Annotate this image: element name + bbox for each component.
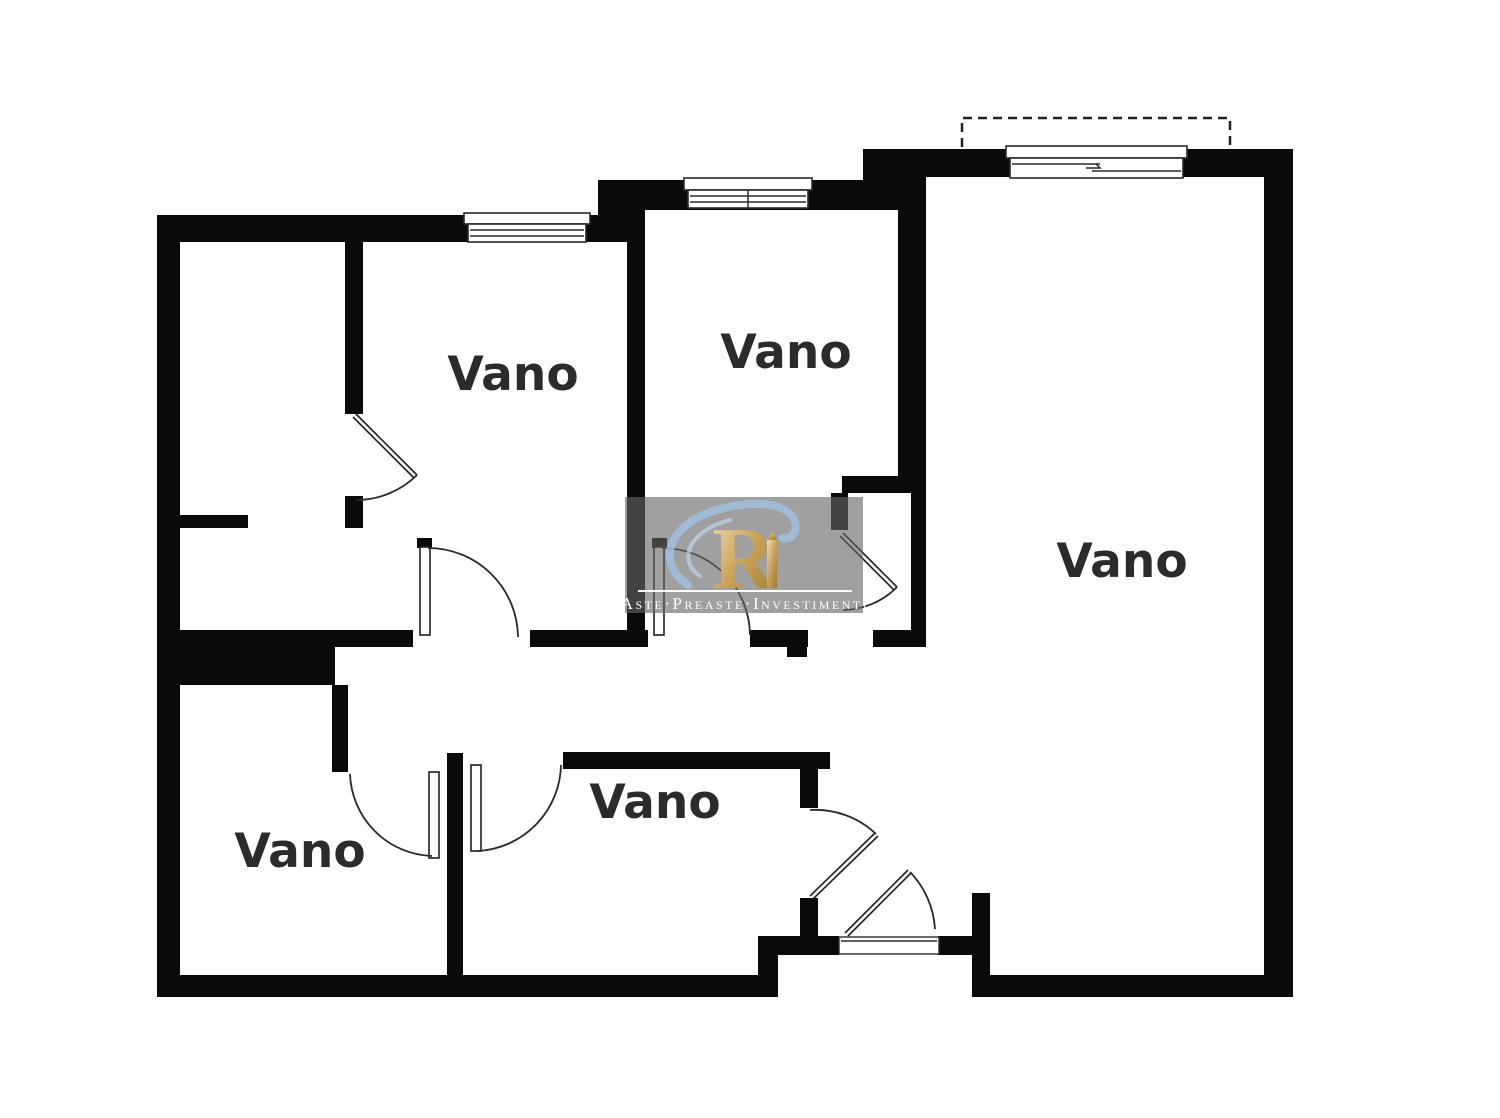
window-upper-right (1006, 146, 1187, 178)
wall-segment (157, 215, 180, 997)
wall-segment (800, 898, 818, 938)
window-upper-left (464, 213, 590, 242)
wall-segment (842, 476, 926, 493)
room-label-vano-5: Vano (589, 775, 720, 830)
wall-segment (938, 936, 972, 955)
room-label-vano-2: Vano (720, 325, 851, 380)
wall-segment (530, 630, 648, 647)
wall-segment (787, 647, 807, 657)
floor-plan-page: Vano Vano Vano Vano Vano R Aste·Preaste·… (0, 0, 1500, 1118)
window-upper-center (684, 178, 812, 208)
wall-segment (1264, 149, 1293, 997)
wall-segment (972, 975, 1293, 997)
entrance-threshold (839, 937, 939, 954)
window-sill (1006, 146, 1187, 158)
room-label-vano-1: Vano (447, 347, 578, 402)
floor-plan-drawing: Vano Vano Vano Vano Vano R Aste·Preaste·… (0, 0, 1500, 1118)
wall-segment (598, 180, 630, 242)
room-label-vano-3: Vano (1056, 534, 1187, 589)
wall-segment (157, 975, 778, 997)
window-sill (464, 213, 590, 224)
wall-segment (447, 753, 463, 977)
wall-segment (168, 643, 335, 685)
wall-segment (911, 478, 926, 647)
window-frame (468, 224, 586, 242)
wall-segment (898, 177, 926, 478)
wall-segment (750, 630, 808, 647)
monogram-i (767, 540, 777, 588)
door-jamb (345, 402, 363, 414)
watermark-label: Aste·Preaste·Investimenti (621, 594, 870, 613)
wall-segment (172, 515, 248, 528)
wall-segment (345, 496, 363, 528)
window-sill (684, 178, 812, 190)
wall-segment (563, 752, 830, 769)
wall-segment (778, 936, 839, 955)
watermark: R Aste·Preaste·Investimenti (621, 497, 870, 613)
room-label-vano-4: Vano (234, 824, 365, 879)
wall-segment (345, 242, 363, 412)
wall-segment (332, 685, 348, 772)
wall-segment (972, 893, 990, 997)
wall-segment (800, 769, 818, 808)
